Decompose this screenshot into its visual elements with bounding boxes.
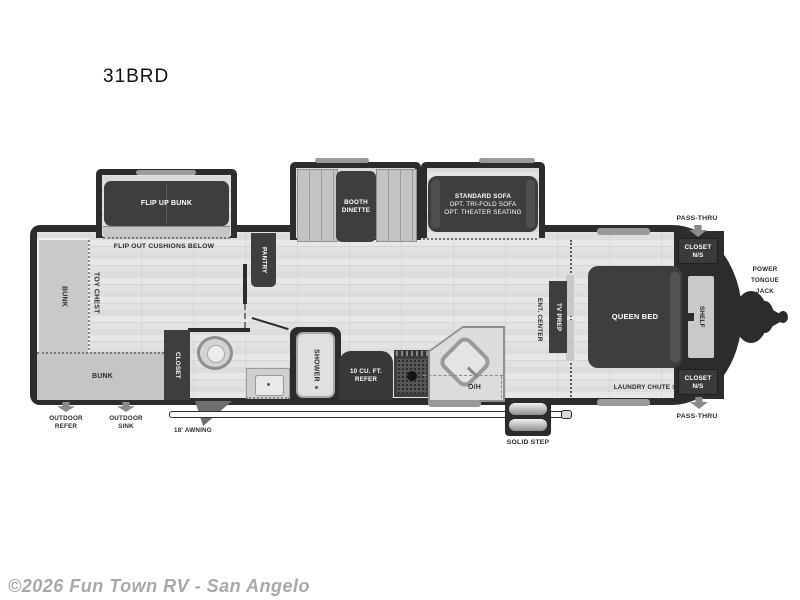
tv-prep: TV PREP — [549, 281, 567, 353]
closet-ns-top: CLOSET N/S — [678, 238, 718, 264]
shower-drain-icon — [315, 386, 318, 389]
closet-ns-label-line1: CLOSET — [685, 244, 712, 252]
outdoor-refer-line1: OUTDOOR — [49, 415, 83, 423]
awning-end-cap-icon — [561, 410, 572, 419]
laundry-chute-label: LAUNDRY CHUTE > — [600, 384, 676, 392]
entry-step — [505, 399, 551, 436]
watermark: ©2026 Fun Town RV - San Angelo — [8, 576, 310, 597]
closet-ns-label-line2: N/S — [692, 383, 703, 390]
outdoor-refer-label: OUTDOOR REFER — [38, 414, 94, 432]
sofa-armrest — [526, 180, 535, 228]
hitch-bracket-icon — [724, 332, 736, 339]
queen-bed: QUEEN BED — [588, 266, 682, 368]
hitch-ball-icon — [778, 311, 788, 323]
bunk-side: BUNK — [37, 238, 90, 356]
sofa-label-line1: STANDARD SOFA — [455, 192, 511, 201]
refer-label-line2: REFER — [355, 376, 377, 384]
bath-vanity — [246, 368, 290, 399]
sofa-label-line2: OPT. TRI-FOLD SOFA — [450, 201, 517, 209]
slideout-handle-icon — [315, 158, 369, 163]
stove — [394, 350, 430, 397]
page-title: 31BRD — [103, 66, 169, 88]
slideout-handle-icon — [479, 158, 535, 163]
overhead-cabinet-dashed — [501, 376, 502, 398]
bathroom-wall — [188, 328, 250, 332]
queen-bed-label: QUEEN BED — [612, 313, 658, 321]
flip-up-bunk: FLIP UP BUNK — [104, 181, 229, 226]
ent-center: ENT. CENTER — [533, 292, 545, 348]
tv-prep-panel — [566, 320, 574, 361]
interior-wall — [243, 264, 247, 304]
shelf-label: SHELF — [697, 306, 705, 328]
toy-chest: TOY CHEST — [90, 268, 101, 318]
shower: SHOWER — [296, 332, 335, 398]
closet-ns-bottom: CLOSET N/S — [678, 369, 718, 395]
awning-label: 18' AWNING — [174, 427, 212, 435]
pass-thru-bottom-label: PASS-THRU — [668, 412, 726, 421]
ent-center-label: ENT. CENTER — [535, 298, 543, 341]
slideout-handle-icon — [136, 170, 196, 175]
sofa: STANDARD SOFA OPT. TRI-FOLD SOFA OPT. TH… — [428, 176, 538, 232]
ptj-line1: POWER — [753, 264, 778, 275]
outdoor-sink-line1: OUTDOOR — [109, 415, 143, 423]
dinette-bench-left — [297, 169, 338, 242]
wall-handle-icon — [428, 400, 481, 407]
shelf: SHELF — [688, 276, 714, 358]
ptj-line2: TONGUE — [751, 275, 779, 286]
pass-thru-top-label: PASS-THRU — [668, 214, 726, 223]
sofa-label-line3: OPT. THEATER SEATING — [444, 209, 521, 217]
stove-vent-icon — [396, 351, 428, 356]
solid-step-label: SOLID STEP — [499, 438, 557, 447]
sink-drain-icon — [267, 383, 270, 386]
closet-label: CLOSET — [173, 352, 181, 379]
dinette-label-line2: DINETTE — [342, 207, 370, 215]
shelf-divider — [687, 313, 694, 321]
stove-knob-icon — [407, 371, 417, 381]
wall-handle-icon — [597, 399, 650, 406]
overhead-label: O/H — [468, 384, 481, 392]
overhead-cabinet-dashed — [423, 375, 503, 376]
shower-label: SHOWER — [312, 349, 320, 382]
hitch-bracket-icon — [724, 295, 736, 302]
bedroom-partition-dotted — [570, 240, 572, 397]
bunk-side-label: BUNK — [60, 286, 68, 307]
toilet-bowl-icon — [207, 345, 225, 363]
wall-handle-icon — [597, 228, 650, 235]
step-tread-icon — [509, 403, 547, 415]
outdoor-sink-line2: SINK — [118, 423, 134, 431]
outdoor-sink-label: OUTDOOR SINK — [98, 414, 154, 432]
step-tread-icon — [509, 419, 547, 431]
dinette-bench-right — [376, 169, 417, 242]
bunk-rear-label: BUNK — [92, 373, 113, 381]
outdoor-refer-line2: REFER — [55, 423, 77, 431]
bunk-rear: BUNK — [37, 352, 168, 400]
pantry: PANTRY — [251, 233, 276, 287]
refrigerator: 10 CU. FT. REFER — [339, 351, 393, 400]
tv-prep-label: TV PREP — [554, 303, 562, 331]
flip-up-bunk-base — [103, 226, 230, 239]
cushion-seam — [166, 184, 167, 223]
closet-ns-label-line1: CLOSET — [685, 375, 712, 383]
flip-out-cushions-label: FLIP OUT CUSHIONS BELOW — [100, 242, 228, 251]
toy-chest-label: TOY CHEST — [92, 272, 100, 314]
door-opening-dashed — [244, 304, 246, 328]
tv-prep-panel — [566, 275, 574, 316]
closet-ns-label-line2: N/S — [692, 252, 703, 259]
slide-opening-line — [423, 238, 537, 240]
bed-headboard — [670, 272, 680, 362]
dinette-table: BOOTH DINETTE — [336, 171, 376, 242]
refer-label-line1: 10 CU. FT. — [350, 368, 382, 376]
bathroom-closet: CLOSET — [164, 330, 190, 400]
sofa-armrest — [431, 180, 440, 228]
pantry-label: PANTRY — [260, 247, 268, 273]
floorplan-page: 31BRD FLIP UP BUNK BOOTH DINETTE STANDAR… — [0, 0, 800, 600]
dinette-label-line1: BOOTH — [344, 199, 368, 207]
